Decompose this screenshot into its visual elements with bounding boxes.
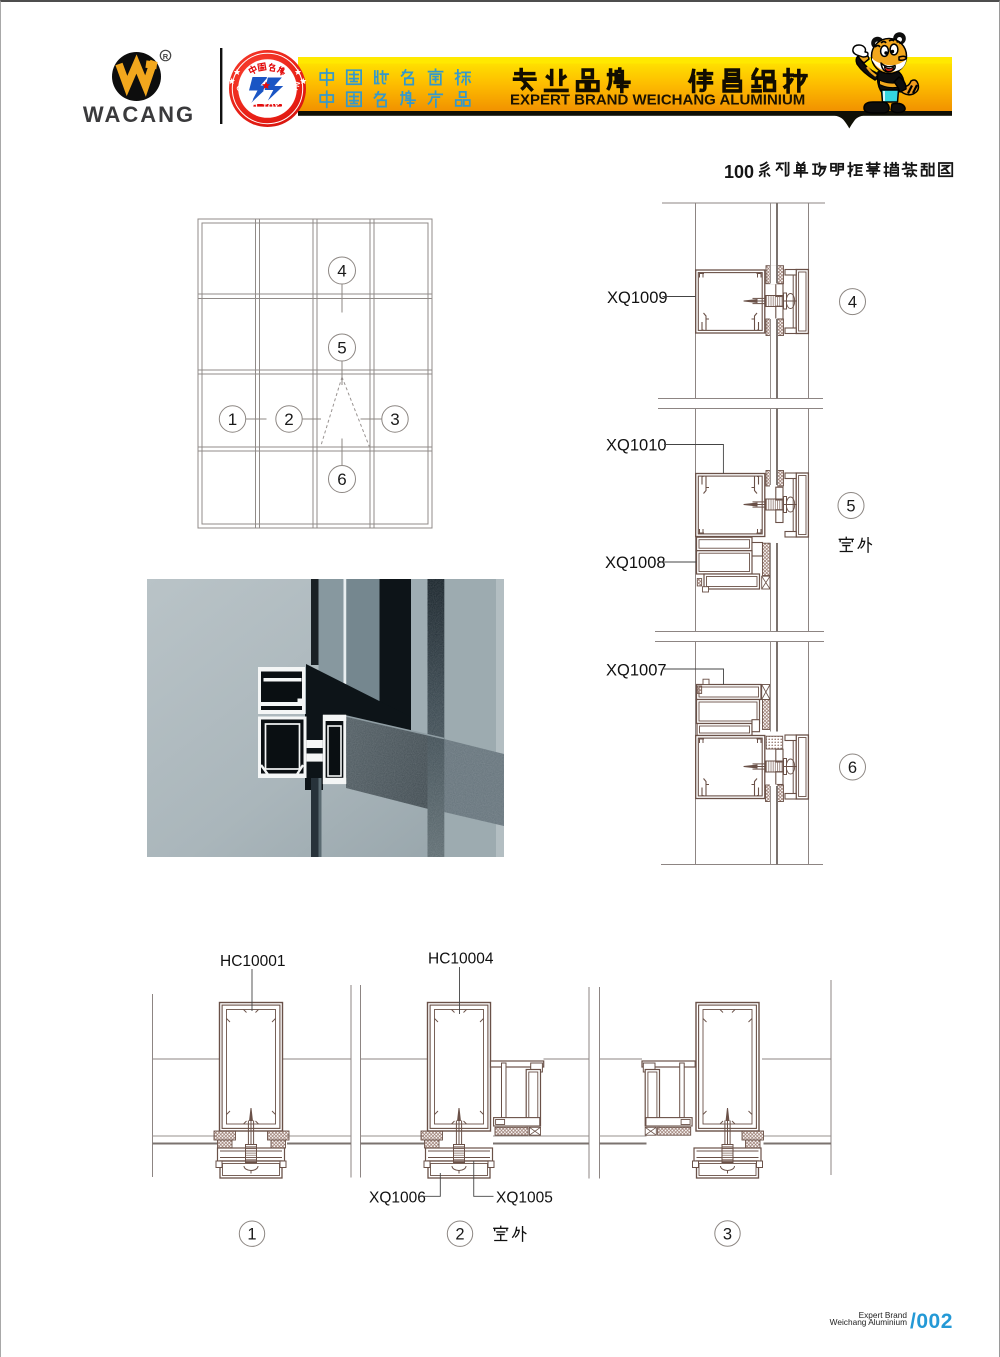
- svg-text:XQ1006: XQ1006: [369, 1190, 426, 1207]
- svg-text:2: 2: [284, 410, 293, 429]
- svg-text:XQ1008: XQ1008: [605, 554, 666, 572]
- svg-text:HC10001: HC10001: [220, 953, 286, 970]
- svg-text:4: 4: [848, 293, 857, 311]
- svg-text:WACANG: WACANG: [83, 102, 195, 127]
- svg-text:XQ1010: XQ1010: [606, 437, 667, 455]
- svg-text:R: R: [163, 52, 169, 61]
- svg-text:EXPERT BRAND WEICHANG ALUMINIU: EXPERT BRAND WEICHANG ALUMINIUM: [510, 92, 805, 109]
- svg-text:3: 3: [723, 1225, 732, 1243]
- svg-text:1: 1: [228, 410, 237, 429]
- svg-text:XQ1007: XQ1007: [606, 662, 667, 680]
- svg-text:XQ1009: XQ1009: [607, 289, 668, 307]
- svg-text:XQ1005: XQ1005: [496, 1190, 553, 1207]
- svg-text:6: 6: [337, 470, 346, 489]
- svg-text:3: 3: [390, 410, 399, 429]
- svg-text:100: 100: [724, 162, 754, 182]
- svg-text:HC10004: HC10004: [428, 951, 494, 968]
- svg-text:4: 4: [337, 262, 346, 281]
- svg-text:5: 5: [337, 339, 346, 358]
- svg-text:6: 6: [848, 759, 857, 777]
- svg-text:2: 2: [455, 1226, 464, 1244]
- svg-text:1: 1: [247, 1226, 256, 1244]
- svg-text:5: 5: [846, 497, 855, 515]
